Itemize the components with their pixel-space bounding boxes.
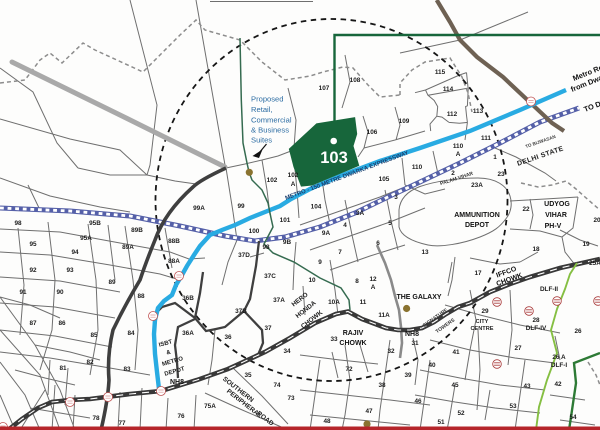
svg-text:115: 115	[435, 69, 446, 76]
svg-text:33: 33	[330, 336, 338, 343]
svg-text:88A: 88A	[168, 258, 180, 265]
svg-text:87: 87	[29, 320, 37, 327]
svg-text:95B: 95B	[89, 220, 101, 227]
svg-text:18: 18	[532, 246, 540, 253]
svg-text:A: A	[291, 181, 296, 188]
svg-text:84: 84	[127, 330, 135, 337]
svg-text:106: 106	[367, 129, 378, 136]
svg-text:37A: 37A	[273, 297, 285, 304]
svg-text:54: 54	[569, 414, 577, 421]
svg-text:AMMUNITION: AMMUNITION	[454, 212, 500, 219]
svg-text:91: 91	[19, 289, 27, 296]
svg-text:110: 110	[453, 143, 464, 150]
svg-text:6: 6	[376, 240, 380, 247]
svg-text:35: 35	[244, 372, 252, 379]
svg-text:CENTRE: CENTRE	[471, 326, 494, 332]
svg-text:100: 100	[249, 228, 260, 235]
svg-text:88: 88	[137, 293, 145, 300]
svg-text:3A: 3A	[356, 210, 365, 217]
svg-text:8: 8	[355, 278, 359, 285]
svg-text:29: 29	[481, 308, 489, 315]
svg-text:36B: 36B	[182, 295, 194, 302]
svg-text:88B: 88B	[168, 238, 180, 245]
svg-text:78: 78	[92, 415, 100, 422]
svg-text:89A: 89A	[122, 244, 134, 251]
svg-text:52: 52	[457, 410, 465, 417]
svg-text:92: 92	[29, 267, 37, 274]
svg-text:31: 31	[411, 340, 419, 347]
svg-text:THE GALAXY: THE GALAXY	[396, 294, 441, 301]
svg-text:89: 89	[108, 279, 116, 286]
svg-text:& Business: & Business	[251, 126, 289, 135]
svg-text:UDYOG: UDYOG	[544, 201, 570, 208]
svg-text:1: 1	[493, 154, 497, 161]
svg-text:CITY: CITY	[476, 319, 489, 325]
svg-text:VIHAR: VIHAR	[545, 212, 567, 219]
svg-text:39: 39	[404, 372, 412, 379]
svg-text:RAJIV: RAJIV	[343, 330, 364, 337]
svg-text:5: 5	[388, 220, 392, 227]
svg-text:DLF-IV: DLF-IV	[526, 325, 547, 332]
svg-text:45: 45	[451, 382, 459, 389]
svg-text:103: 103	[320, 149, 348, 167]
svg-text:53: 53	[509, 403, 517, 410]
svg-text:Suites: Suites	[251, 136, 272, 145]
svg-text:37C: 37C	[264, 273, 276, 280]
svg-text:47: 47	[365, 408, 373, 415]
svg-text:9A: 9A	[322, 230, 331, 237]
svg-text:95A: 95A	[80, 235, 92, 242]
svg-text:11A: 11A	[378, 312, 390, 319]
svg-text:99A: 99A	[193, 205, 205, 212]
svg-text:26 A: 26 A	[552, 354, 566, 361]
svg-text:23: 23	[497, 171, 505, 178]
svg-text:46: 46	[414, 398, 422, 405]
svg-text:17: 17	[474, 270, 482, 277]
svg-text:20: 20	[593, 217, 600, 224]
svg-text:81: 81	[59, 365, 67, 372]
svg-text:NH8: NH8	[170, 379, 184, 386]
svg-text:A: A	[371, 284, 376, 291]
svg-text:42: 42	[554, 381, 562, 388]
svg-text:36A: 36A	[182, 330, 194, 337]
svg-text:86: 86	[58, 320, 66, 327]
svg-text:Retail,: Retail,	[251, 105, 273, 114]
svg-text:NH8: NH8	[405, 331, 419, 338]
svg-text:73: 73	[287, 395, 295, 402]
svg-text:Proposed: Proposed	[251, 95, 284, 104]
svg-text:111: 111	[481, 135, 491, 142]
svg-text:7: 7	[338, 249, 342, 256]
svg-text:23A: 23A	[471, 182, 483, 189]
svg-text:94: 94	[71, 249, 79, 256]
svg-text:12: 12	[369, 276, 377, 283]
svg-text:76: 76	[177, 413, 185, 420]
svg-text:99: 99	[237, 203, 245, 210]
svg-text:CHOWK: CHOWK	[339, 340, 366, 347]
svg-text:89B: 89B	[131, 227, 143, 234]
svg-text:72: 72	[345, 366, 353, 373]
svg-text:22: 22	[522, 206, 530, 213]
svg-text:41: 41	[452, 349, 460, 356]
svg-text:90: 90	[56, 289, 64, 296]
svg-text:105: 105	[379, 176, 390, 183]
svg-text:113: 113	[473, 108, 484, 115]
svg-text:95: 95	[29, 241, 37, 248]
svg-text:40: 40	[428, 362, 436, 369]
svg-text:38: 38	[378, 382, 386, 389]
svg-text:10A: 10A	[328, 299, 340, 306]
svg-text:4: 4	[343, 222, 347, 229]
svg-text:10: 10	[308, 277, 316, 284]
svg-text:112: 112	[447, 111, 458, 118]
svg-text:107: 107	[319, 85, 330, 92]
svg-text:74: 74	[273, 382, 281, 389]
svg-text:43: 43	[523, 383, 531, 390]
svg-text:102: 102	[267, 177, 278, 184]
svg-text:75A: 75A	[204, 403, 216, 410]
svg-text:13: 13	[421, 249, 429, 256]
svg-text:82: 82	[86, 359, 94, 366]
svg-text:37: 37	[264, 325, 272, 332]
svg-text:Commercial: Commercial	[251, 116, 292, 125]
svg-text:110: 110	[412, 164, 423, 171]
svg-text:PH-V: PH-V	[545, 223, 562, 230]
svg-text:28: 28	[532, 317, 540, 324]
svg-text:101: 101	[280, 217, 291, 224]
svg-text:98: 98	[14, 220, 22, 227]
svg-text:36: 36	[224, 334, 232, 341]
svg-text:9: 9	[318, 259, 322, 266]
svg-text:109: 109	[399, 118, 410, 125]
svg-text:DEPOT: DEPOT	[465, 222, 490, 229]
svg-text:DLF-I: DLF-I	[551, 362, 568, 369]
svg-text:93: 93	[66, 267, 74, 274]
svg-text:114: 114	[443, 86, 454, 93]
svg-text:DLF-II: DLF-II	[540, 286, 558, 293]
svg-text:48: 48	[323, 418, 331, 425]
svg-text:102: 102	[288, 172, 299, 179]
svg-text:98: 98	[262, 244, 270, 251]
svg-text:19: 19	[582, 241, 590, 248]
svg-text:85: 85	[90, 332, 98, 339]
svg-text:32: 32	[387, 348, 395, 355]
svg-text:27: 27	[514, 345, 522, 352]
svg-text:108: 108	[350, 77, 361, 84]
svg-text:A: A	[456, 151, 461, 158]
svg-text:11: 11	[360, 299, 367, 306]
svg-text:25A: 25A	[589, 260, 600, 267]
svg-text:77: 77	[118, 420, 126, 427]
svg-text:3: 3	[394, 194, 398, 201]
svg-text:37D: 37D	[238, 252, 250, 259]
svg-text:26: 26	[574, 328, 582, 335]
svg-text:9B: 9B	[283, 239, 292, 246]
svg-text:83: 83	[123, 366, 131, 373]
svg-text:37B: 37B	[235, 308, 247, 315]
svg-text:51: 51	[437, 419, 445, 426]
svg-text:34: 34	[283, 348, 291, 355]
svg-text:104: 104	[311, 204, 322, 211]
